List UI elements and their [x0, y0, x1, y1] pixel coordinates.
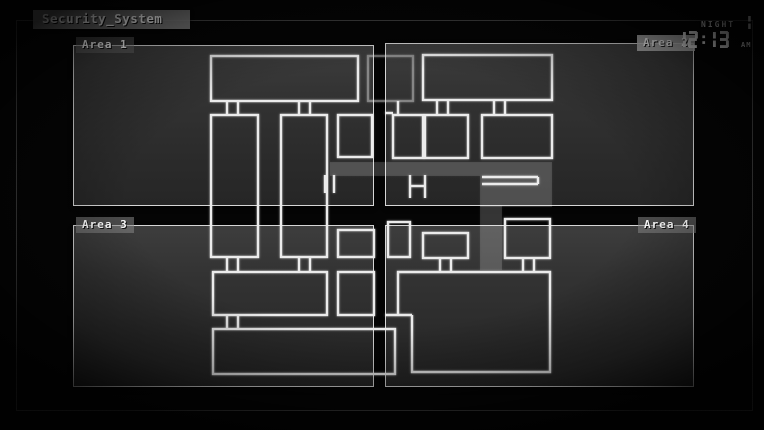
camera-panel-area-2[interactable] [385, 43, 694, 206]
camera-panel-area-4[interactable] [385, 225, 694, 387]
security-system-screen: Area 1 Area 2 Area 3 Area 4 Security_Sys… [0, 0, 764, 430]
camera-panel-area-1[interactable] [73, 45, 374, 206]
title-bar: Security_System [33, 10, 190, 29]
area-2-label: Area 2 [637, 35, 695, 51]
area-3-label: Area 3 [76, 217, 134, 233]
page-title: Security_System [42, 11, 162, 26]
area-1-label: Area 1 [76, 37, 134, 53]
area-4-label: Area 4 [638, 217, 696, 233]
camera-panel-area-3[interactable] [73, 225, 374, 387]
